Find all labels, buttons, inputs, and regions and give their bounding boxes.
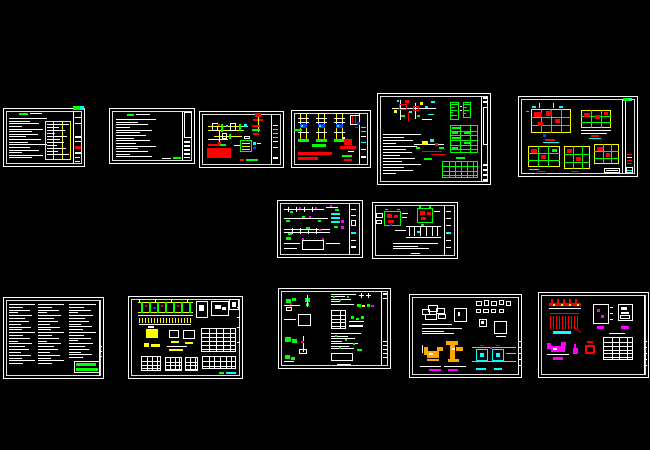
- cad-primitive-f: [460, 110, 462, 111]
- text-line: [116, 130, 152, 131]
- cad-primitive-f: [432, 227, 433, 236]
- cad-primitive-f: [429, 369, 441, 371]
- pipe-schematic-sheet-a[interactable]: [277, 200, 363, 258]
- hatch-stroke: [571, 316, 572, 329]
- cad-primitive-f: [506, 353, 516, 354]
- cad-primitive-f: [518, 297, 519, 375]
- cad-primitive-o: [169, 330, 179, 338]
- cad-primitive-f: [424, 347, 428, 355]
- text-line: [116, 146, 156, 147]
- cad-primitive-f: [625, 99, 626, 174]
- cad-primitive-f: [603, 144, 604, 164]
- text-line: [9, 355, 31, 356]
- cad-primitive-f: [537, 171, 545, 172]
- cad-primitive-f: [448, 369, 458, 371]
- notes-sheet-three-columns[interactable]: [3, 297, 104, 379]
- cad-primitive-f: [187, 299, 188, 302]
- hatch-stroke: [565, 316, 566, 329]
- cad-primitive-f: [549, 308, 581, 309]
- cad-primitive-f: [397, 209, 400, 210]
- cad-primitive-f: [361, 156, 366, 158]
- cad-primitive-f: [597, 147, 603, 151]
- text-line: [38, 315, 61, 316]
- cad-primitive-f: [422, 119, 432, 120]
- cad-primitive-f: [253, 147, 256, 149]
- cad-primitive-f: [305, 298, 310, 302]
- cad-primitive-f: [302, 238, 304, 240]
- cad-primitive-f: [585, 347, 587, 354]
- grid-col-line: [231, 357, 232, 368]
- cad-primitive-f: [366, 295, 371, 296]
- cad-primitive-o: [593, 304, 609, 324]
- equipment-details-sheet[interactable]: [278, 288, 391, 369]
- cad-primitive-o: [196, 301, 208, 318]
- text-line: [47, 139, 60, 140]
- cad-primitive-f: [73, 111, 74, 164]
- general-notes-sheet[interactable]: [109, 108, 195, 164]
- text-line: [464, 104, 470, 105]
- cad-workspace-canvas[interactable]: [0, 0, 650, 450]
- cad-primitive-f: [298, 152, 332, 155]
- cad-primitive-f: [585, 345, 595, 347]
- cad-primitive-f: [483, 179, 488, 181]
- cad-primitive-f: [349, 321, 364, 322]
- text-line: [47, 154, 69, 155]
- cad-primitive-f: [427, 359, 439, 361]
- grid-row-line: [451, 135, 477, 136]
- grid-col-line: [455, 162, 456, 177]
- cad-primitive-grid: [450, 125, 478, 153]
- text-line: [47, 145, 57, 146]
- cad-primitive-f: [208, 139, 228, 140]
- text-line: [116, 122, 138, 123]
- cad-primitive-o: [230, 123, 236, 131]
- cad-primitive-f: [481, 96, 482, 182]
- cad-primitive-f: [75, 157, 80, 158]
- cad-primitive-f: [273, 147, 278, 148]
- text-line: [9, 126, 22, 127]
- cad-primitive-o: [422, 309, 430, 315]
- cad-primitive-f: [173, 302, 175, 313]
- cad-primitive-f: [273, 133, 278, 134]
- cad-primitive-f: [589, 138, 601, 139]
- text-line: [383, 140, 413, 141]
- cad-primitive-f: [357, 349, 362, 351]
- pump-room-details-sheet[interactable]: [538, 292, 649, 378]
- hatch-stroke: [160, 318, 161, 323]
- cad-primitive-o: [417, 208, 433, 223]
- cad-primitive-f: [273, 137, 278, 138]
- cad-primitive-f: [557, 299, 559, 303]
- text-line: [69, 329, 83, 330]
- cad-primitive-f: [610, 307, 613, 308]
- cad-primitive-f: [464, 142, 471, 144]
- grid-row-line: [142, 361, 160, 362]
- site-machinery-sheet[interactable]: [409, 294, 522, 378]
- cad-primitive-f: [75, 123, 81, 124]
- text-line: [69, 343, 93, 344]
- cad-primitive-f: [330, 205, 332, 207]
- cad-primitive-f: [394, 215, 398, 218]
- cad-primitive-f: [368, 293, 369, 298]
- grid-col-line: [461, 162, 462, 177]
- cad-primitive-f: [149, 302, 151, 313]
- cad-primitive-f: [547, 343, 551, 349]
- cad-primitive-f: [285, 355, 290, 359]
- cad-primitive-f: [431, 101, 435, 103]
- text-line: [9, 144, 47, 145]
- cad-primitive-f: [182, 111, 183, 161]
- cad-primitive-o: [528, 146, 560, 167]
- hatch-stroke: [166, 318, 167, 323]
- text-line: [464, 110, 469, 111]
- cad-primitive-f: [145, 305, 147, 307]
- cad-primitive-f: [357, 304, 361, 307]
- cad-primitive-f: [361, 136, 366, 137]
- text-line: [116, 143, 136, 144]
- cad-primitive-f: [298, 139, 309, 142]
- text-line: [331, 304, 354, 305]
- grid-col-line: [226, 357, 227, 368]
- cad-primitive-f: [419, 206, 421, 208]
- text-line: [69, 315, 93, 316]
- cad-primitive-f: [284, 218, 328, 219]
- cad-primitive-f: [290, 211, 293, 213]
- cad-primitive-f: [318, 220, 321, 222]
- hatch-stroke: [157, 318, 158, 323]
- sheet-inner-border: [202, 114, 281, 165]
- cad-primitive-f: [383, 353, 387, 354]
- cad-primitive-f: [597, 309, 600, 312]
- cad-primitive-f: [543, 142, 559, 143]
- text-line: [9, 360, 35, 361]
- cad-primitive-f: [406, 237, 441, 238]
- text-line: [116, 151, 148, 152]
- cad-primitive-f: [317, 113, 326, 114]
- text-line: [38, 318, 54, 319]
- cad-primitive-f: [627, 154, 632, 155]
- text-line: [331, 296, 345, 297]
- cad-primitive-f: [531, 117, 571, 118]
- cad-primitive-f: [301, 125, 303, 127]
- cad-primitive-f: [446, 232, 451, 234]
- cad-primitive-f: [138, 312, 193, 313]
- cad-primitive-f: [361, 131, 366, 132]
- cad-primitive-f: [426, 227, 427, 236]
- cad-primitive-f: [452, 137, 460, 139]
- cad-primitive-f: [291, 357, 295, 360]
- cad-primitive-f: [331, 213, 340, 215]
- cad-primitive-f: [551, 346, 565, 352]
- cad-primitive-f: [185, 342, 193, 344]
- cad-primitive-f: [75, 146, 81, 149]
- cad-primitive-f: [574, 344, 576, 348]
- cover-notes-sheet-1[interactable]: [3, 108, 85, 167]
- cad-primitive-f: [460, 106, 462, 107]
- cad-primitive-f: [75, 141, 81, 142]
- cad-primitive-f: [609, 333, 625, 334]
- cad-primitive-f: [322, 238, 324, 240]
- text-line: [383, 134, 421, 135]
- cad-primitive-f: [390, 224, 392, 226]
- cad-primitive-f: [299, 207, 301, 209]
- cad-primitive-f: [559, 106, 563, 108]
- cad-primitive-o: [494, 321, 507, 334]
- cad-primitive-f: [62, 121, 63, 160]
- cad-primitive-f: [519, 365, 521, 366]
- cad-primitive-f: [529, 169, 539, 170]
- large-schematic-sheet[interactable]: [377, 93, 491, 185]
- cad-primitive-f: [284, 209, 324, 210]
- grid-row-line: [166, 365, 181, 366]
- text-line: [38, 332, 64, 333]
- cad-primitive-lines: [38, 304, 64, 366]
- cad-primitive-f: [604, 112, 608, 115]
- cad-primitive-f: [584, 113, 590, 117]
- cad-primitive-f: [597, 326, 604, 329]
- cad-primitive-f: [316, 118, 327, 119]
- cad-primitive-f: [444, 366, 466, 367]
- cad-primitive-f: [359, 295, 364, 296]
- grid-col-line: [230, 329, 231, 351]
- cad-primitive-f: [428, 114, 434, 115]
- cad-primitive-o: [351, 220, 356, 226]
- text-line: [9, 123, 39, 124]
- cad-primitive-f: [543, 134, 546, 137]
- cad-primitive-f: [344, 139, 352, 145]
- text-line: [9, 346, 25, 347]
- text-line: [38, 341, 47, 342]
- cad-primitive-f: [217, 124, 220, 126]
- cad-primitive-f: [127, 114, 134, 116]
- cad-primitive-f: [100, 346, 102, 347]
- cad-primitive-f: [621, 326, 629, 329]
- cad-primitive-f: [606, 170, 618, 171]
- cad-primitive-f: [342, 114, 343, 140]
- cad-primitive-o: [506, 301, 511, 306]
- grid-col-line: [223, 329, 224, 351]
- cad-primitive-f: [253, 119, 263, 121]
- cad-primitive-f: [286, 237, 291, 240]
- cad-primitive-f: [347, 296, 349, 298]
- cad-primitive-f: [480, 345, 484, 346]
- text-line: [451, 112, 453, 113]
- text-line: [393, 248, 429, 249]
- text-line: [38, 346, 54, 347]
- cad-primitive-f: [312, 207, 313, 212]
- cad-primitive-f: [181, 302, 183, 313]
- cad-primitive-f: [553, 357, 563, 360]
- hatch-stroke: [178, 318, 179, 323]
- text-line: [69, 312, 78, 313]
- text-line: [383, 137, 404, 138]
- cad-primitive-f: [571, 171, 579, 172]
- cad-primitive-f: [208, 144, 218, 146]
- text-line: [116, 127, 130, 128]
- cad-primitive-f: [397, 100, 399, 102]
- cad-primitive-lines: [69, 304, 96, 360]
- cad-primitive-o: [384, 211, 401, 226]
- cad-primitive-f: [308, 228, 309, 234]
- cad-primitive-f: [622, 99, 623, 174]
- cad-primitive-f: [232, 302, 236, 307]
- cad-primitive-f: [594, 151, 619, 152]
- cad-primitive-f: [581, 122, 611, 123]
- cad-primitive-f: [351, 215, 356, 216]
- cad-primitive-f: [381, 291, 382, 366]
- structure-elevation-sheet[interactable]: [128, 296, 243, 379]
- text-line: [383, 170, 413, 171]
- cad-primitive-f: [339, 299, 341, 301]
- cad-primitive-f: [285, 337, 291, 342]
- cad-primitive-lines: [464, 104, 470, 116]
- cad-primitive-f: [476, 368, 486, 370]
- cad-primitive-f: [361, 293, 362, 298]
- cad-primitive-f: [427, 351, 439, 358]
- hatch-stroke: [151, 318, 152, 323]
- text-line: [383, 143, 396, 144]
- cad-primitive-f: [80, 106, 84, 110]
- cad-primitive-f: [146, 329, 158, 338]
- cad-primitive-f: [304, 207, 305, 212]
- cad-primitive-f: [334, 122, 345, 123]
- cad-primitive-o: [491, 301, 497, 306]
- text-line: [47, 133, 55, 134]
- cad-primitive-f: [199, 305, 204, 311]
- cad-primitive-f: [331, 221, 340, 223]
- cad-primitive-f: [253, 133, 259, 135]
- cad-primitive-f: [215, 305, 221, 309]
- sheet-inner-border: [6, 300, 101, 376]
- cad-primitive-f: [551, 299, 553, 303]
- text-line: [422, 328, 462, 329]
- cad-primitive-f: [645, 341, 647, 342]
- cad-primitive-f: [519, 359, 521, 360]
- text-line: [422, 331, 444, 332]
- cad-primitive-f: [75, 161, 80, 162]
- text-line: [116, 119, 156, 120]
- cad-primitive-f: [316, 122, 327, 123]
- cad-primitive-f: [326, 243, 340, 244]
- hatch-stroke: [148, 318, 149, 323]
- text-line: [9, 134, 38, 135]
- cad-primitive-f: [257, 143, 261, 144]
- plan-details-sheet[interactable]: [518, 96, 638, 177]
- text-line: [383, 161, 402, 162]
- cad-primitive-f: [226, 372, 236, 374]
- cad-primitive-f: [519, 347, 521, 348]
- hatch-stroke: [568, 316, 569, 329]
- cad-primitive-f: [573, 146, 574, 169]
- cad-primitive-f: [545, 139, 555, 141]
- cad-primitive-f: [303, 336, 304, 352]
- cad-primitive-f: [434, 211, 440, 212]
- cad-primitive-f: [99, 300, 100, 376]
- cad-primitive-f: [452, 132, 458, 134]
- grid-col-line: [473, 162, 474, 177]
- cad-primitive-f: [401, 115, 405, 117]
- cad-primitive-f: [561, 109, 562, 133]
- cad-primitive-f: [581, 116, 611, 117]
- grid-col-line: [449, 162, 450, 177]
- sheet-inner-border: [281, 291, 388, 366]
- cad-primitive-o: [376, 213, 383, 218]
- cad-primitive-f: [319, 125, 321, 127]
- cad-primitive-f: [621, 307, 627, 310]
- text-line: [9, 307, 23, 308]
- tank-plan-section-sheet[interactable]: [372, 202, 458, 259]
- cad-primitive-f: [345, 339, 347, 341]
- grid-col-line: [467, 162, 468, 177]
- text-line: [331, 336, 348, 337]
- cad-primitive-o: [499, 300, 504, 305]
- grid-col-line: [209, 329, 210, 351]
- grid-col-line: [220, 357, 221, 368]
- text-line: [47, 142, 64, 143]
- text-line: [331, 346, 349, 347]
- cad-primitive-o: [413, 106, 419, 111]
- cad-primitive-f: [273, 157, 278, 159]
- cad-primitive-f: [553, 103, 554, 108]
- piping-detail-sheet[interactable]: [199, 111, 284, 168]
- cad-primitive-f: [139, 324, 191, 325]
- riser-detail-sheet[interactable]: [291, 110, 371, 168]
- cad-primitive-f: [306, 114, 307, 140]
- cad-primitive-f: [361, 316, 364, 319]
- cad-primitive-f: [409, 111, 412, 113]
- cad-primitive-f: [361, 149, 366, 150]
- text-line: [69, 338, 91, 339]
- cad-primitive-f: [409, 255, 421, 256]
- cad-primitive-f: [184, 145, 190, 147]
- cad-primitive-f: [416, 147, 420, 149]
- text-line: [331, 343, 358, 344]
- text-line: [451, 107, 455, 108]
- cad-primitive-f: [553, 348, 557, 350]
- sheet-inner-border: [541, 295, 646, 375]
- cad-primitive-o: [450, 102, 459, 120]
- cad-primitive-f: [437, 227, 438, 236]
- cad-primitive-f: [208, 126, 248, 127]
- cad-primitive-f: [207, 148, 231, 158]
- cad-primitive-f: [629, 98, 632, 101]
- cad-primitive-grid: [201, 328, 236, 352]
- cad-primitive-f: [563, 299, 565, 303]
- cad-primitive-o: [618, 304, 633, 321]
- cad-primitive-f: [229, 134, 231, 139]
- cad-primitive-f: [424, 158, 432, 160]
- cad-primitive-f: [30, 113, 42, 114]
- cad-primitive-f: [564, 154, 590, 155]
- text-line: [38, 312, 47, 313]
- cad-primitive-f: [519, 341, 521, 342]
- cad-primitive-f: [138, 302, 193, 303]
- cad-primitive-o: [476, 301, 482, 306]
- cad-primitive-o: [604, 168, 620, 173]
- cad-primitive-f: [165, 302, 167, 313]
- cad-primitive-f: [582, 146, 583, 169]
- cad-primitive-f: [284, 232, 330, 233]
- cad-primitive-f: [298, 122, 309, 123]
- text-line: [451, 115, 457, 116]
- text-line: [383, 146, 417, 147]
- cad-primitive-f: [573, 348, 578, 354]
- text-line: [9, 312, 18, 313]
- grid-col-line: [179, 358, 180, 370]
- cad-primitive-f: [184, 153, 190, 155]
- cad-primitive-f: [532, 106, 536, 108]
- text-line: [9, 129, 43, 130]
